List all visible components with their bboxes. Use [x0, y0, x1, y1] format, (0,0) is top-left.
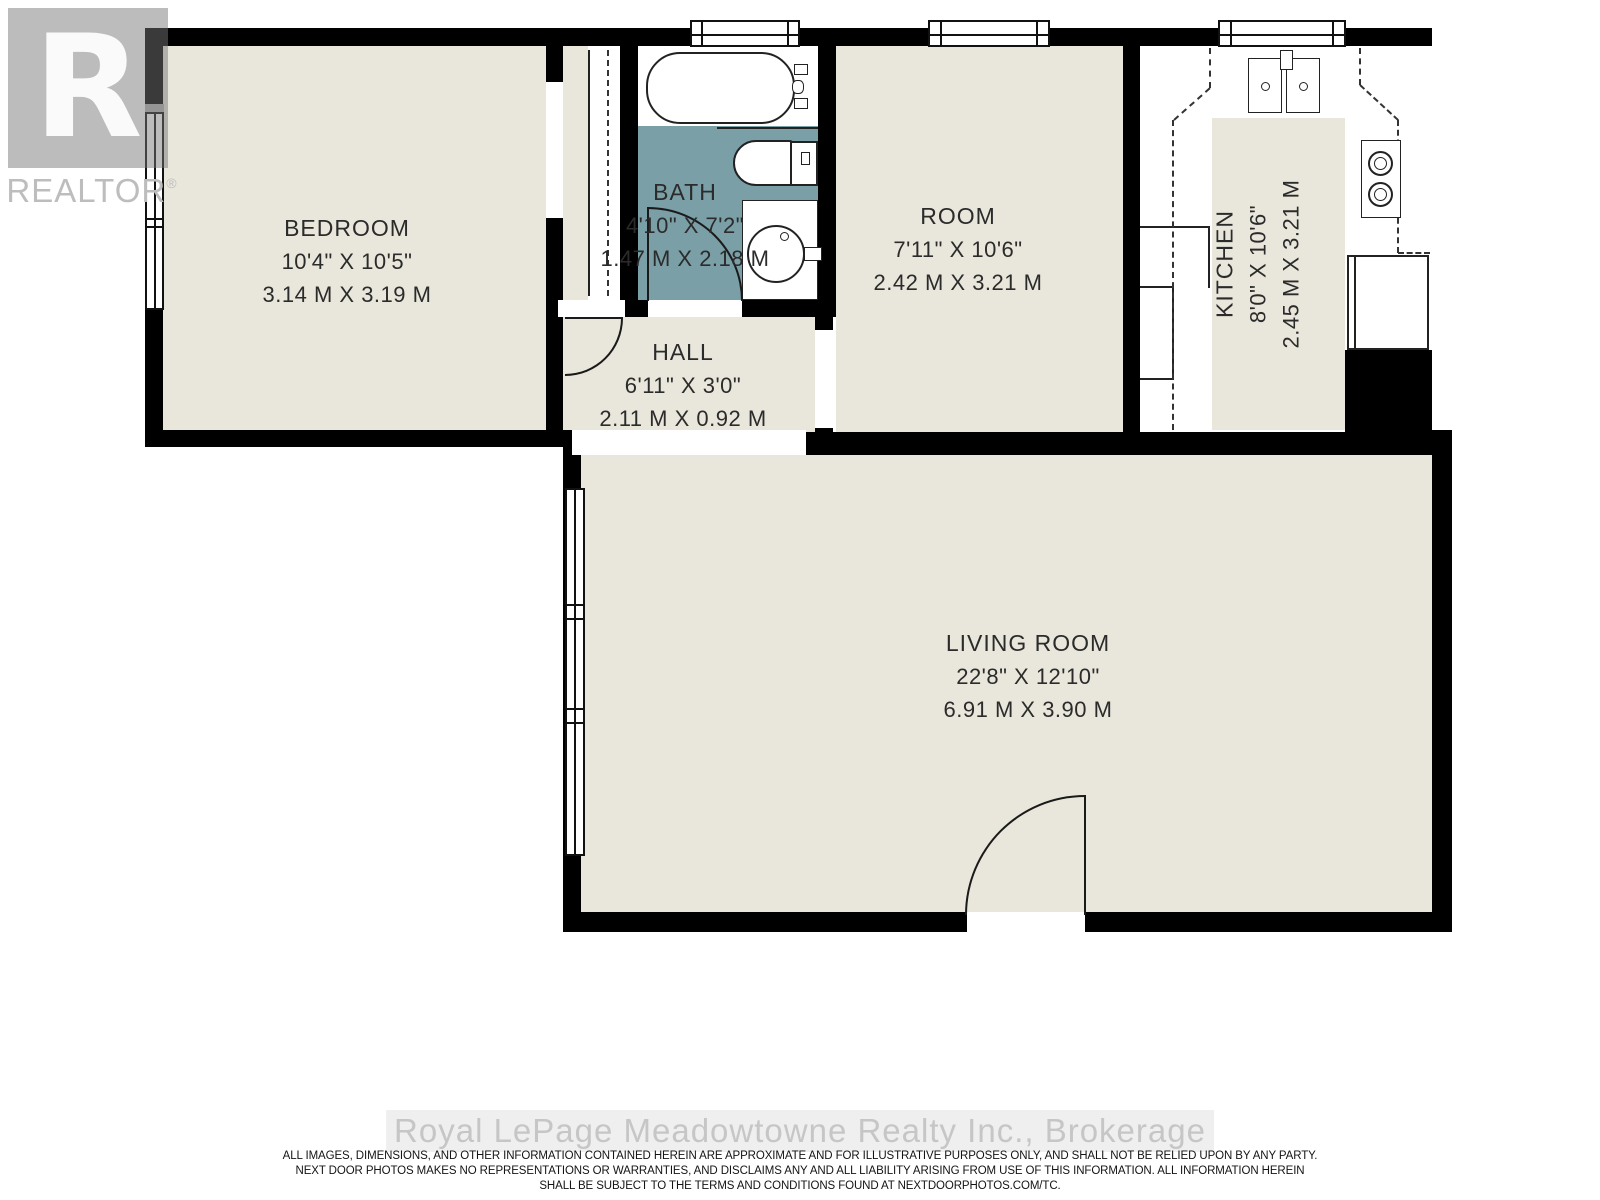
room-name: BEDROOM [263, 212, 432, 245]
bath-label: BATH 4'10" X 7'2" 1.47 M X 2.18 M [601, 176, 770, 275]
room-dimensions-metric: 1.47 M X 2.18 M [601, 242, 770, 275]
room-dimensions-imperial: 10'4" X 10'5" [263, 245, 432, 278]
bath-edge-line [717, 127, 818, 129]
bathtub-faucet-icon [794, 98, 808, 109]
room-dimensions-imperial: 22'8" X 12'10" [944, 660, 1113, 693]
kitchen-label: KITCHEN 8'0" X 10'6" 2.45 M X 3.21 M [1209, 124, 1308, 404]
kitchen-faucet-icon [1280, 50, 1293, 70]
realtor-logo-text: REALTOR® [4, 172, 180, 210]
room-label: ROOM 7'11" X 10'6" 2.42 M X 3.21 M [874, 200, 1043, 299]
wall [806, 432, 1432, 455]
closet-shelf-line [588, 50, 590, 296]
bedroom-door-opening [558, 300, 625, 317]
wall [818, 46, 836, 317]
upper-cabinet-dashed-line [1209, 48, 1211, 88]
room-dimensions-metric: 2.45 M X 3.21 M [1275, 124, 1308, 404]
disclaimer-text: ALL IMAGES, DIMENSIONS, AND OTHER INFORM… [220, 1149, 1380, 1194]
disclaimer-line: NEXT DOOR PHOTOS MAKES NO REPRESENTATION… [220, 1164, 1380, 1179]
room-dimensions-imperial: 4'10" X 7'2" [601, 209, 770, 242]
window-icon [1218, 20, 1346, 47]
closet-floor [563, 46, 588, 300]
upper-cabinet-dashed-line [1398, 252, 1430, 254]
living-room-label: LIVING ROOM 22'8" X 12'10" 6.91 M X 3.90… [944, 627, 1113, 726]
room-dimensions-metric: 6.91 M X 3.90 M [944, 693, 1113, 726]
registered-trademark-symbol: ® [166, 175, 177, 191]
room-name: ROOM [874, 200, 1043, 233]
room-name: BATH [601, 176, 770, 209]
room-dimensions-metric: 2.42 M X 3.21 M [874, 266, 1043, 299]
window-icon [565, 488, 585, 856]
toilet-button-icon [801, 152, 810, 165]
sink-drain-icon [1261, 82, 1270, 91]
refrigerator-icon [1347, 255, 1429, 350]
closet-opening [546, 82, 563, 218]
counter-line [1140, 378, 1174, 380]
upper-cabinet-dashed-line [1359, 48, 1361, 85]
bathtub-icon [646, 52, 795, 124]
counter-line [1140, 226, 1210, 228]
room-dimensions-imperial: 6'11" X 3'0" [599, 369, 766, 402]
sink-drain-icon [1299, 82, 1308, 91]
room-dimensions-metric: 3.14 M X 3.19 M [263, 278, 432, 311]
entry-door-opening [967, 912, 1085, 932]
sink-tap-icon [804, 247, 822, 261]
burner-icon [1374, 188, 1387, 201]
wall [1123, 46, 1140, 432]
wall [1432, 430, 1452, 932]
floor-plan: BEDROOM 10'4" X 10'5" 3.14 M X 3.19 M BA… [0, 0, 1600, 1200]
room-name: HALL [599, 336, 766, 369]
room-dimensions-imperial: 7'11" X 10'6" [874, 233, 1043, 266]
room-door-opening [815, 330, 833, 428]
disclaimer-line: ALL IMAGES, DIMENSIONS, AND OTHER INFORM… [220, 1149, 1380, 1164]
upper-cabinet-dashed-line [1172, 120, 1174, 430]
hall-label: HALL 6'11" X 3'0" 2.11 M X 0.92 M [599, 336, 766, 435]
sink-drain-icon [780, 232, 789, 241]
realtor-logo-icon: R [8, 8, 168, 168]
bedroom-label: BEDROOM 10'4" X 10'5" 3.14 M X 3.19 M [263, 212, 432, 311]
realtor-wordmark: REALTOR [6, 172, 166, 209]
disclaimer-line: SHALL BE SUBJECT TO THE TERMS AND CONDIT… [220, 1179, 1380, 1194]
window-icon [928, 20, 1050, 47]
room-dimensions-imperial: 8'0" X 10'6" [1242, 124, 1275, 404]
room-name: LIVING ROOM [944, 627, 1113, 660]
realtor-logo-r: R [33, 17, 142, 159]
wall [145, 430, 572, 447]
bath-door-opening [648, 300, 742, 317]
burner-icon [1374, 157, 1387, 170]
counter-line [1140, 286, 1174, 288]
wall [1345, 350, 1432, 432]
window-icon [690, 20, 800, 47]
brokerage-watermark: Royal LePage Meadowtowne Realty Inc., Br… [386, 1110, 1214, 1152]
bathtub-faucet-icon [794, 64, 808, 75]
room-dimensions-metric: 2.11 M X 0.92 M [599, 402, 766, 435]
bathtub-spout-icon [792, 80, 804, 94]
room-name: KITCHEN [1209, 124, 1242, 404]
